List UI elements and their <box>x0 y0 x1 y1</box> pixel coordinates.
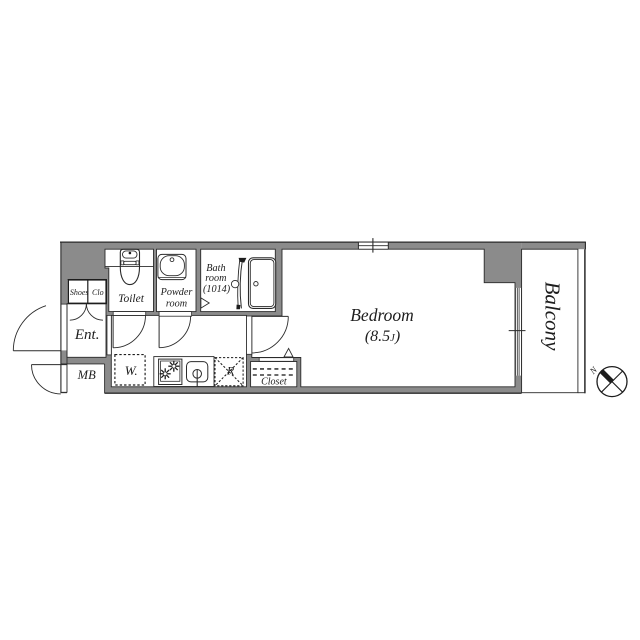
svg-text:Balcony: Balcony <box>541 282 565 351</box>
svg-text:W.: W. <box>125 363 138 378</box>
svg-text:MB: MB <box>77 368 96 382</box>
svg-text:Closet: Closet <box>261 376 287 387</box>
svg-text:Ent.: Ent. <box>74 327 100 343</box>
svg-text:Powder: Powder <box>160 287 193 298</box>
svg-text:(8.5J): (8.5J) <box>365 328 400 345</box>
svg-text:Clo: Clo <box>92 288 104 297</box>
svg-text:(1014): (1014) <box>203 284 231 295</box>
svg-text:Shoes: Shoes <box>70 288 89 297</box>
svg-text:R: R <box>226 364 235 378</box>
svg-text:Bedroom: Bedroom <box>350 305 414 325</box>
svg-text:Toilet: Toilet <box>118 293 145 305</box>
svg-text:Bath: Bath <box>206 263 225 274</box>
svg-text:room: room <box>205 273 226 284</box>
svg-text:room: room <box>166 298 187 309</box>
